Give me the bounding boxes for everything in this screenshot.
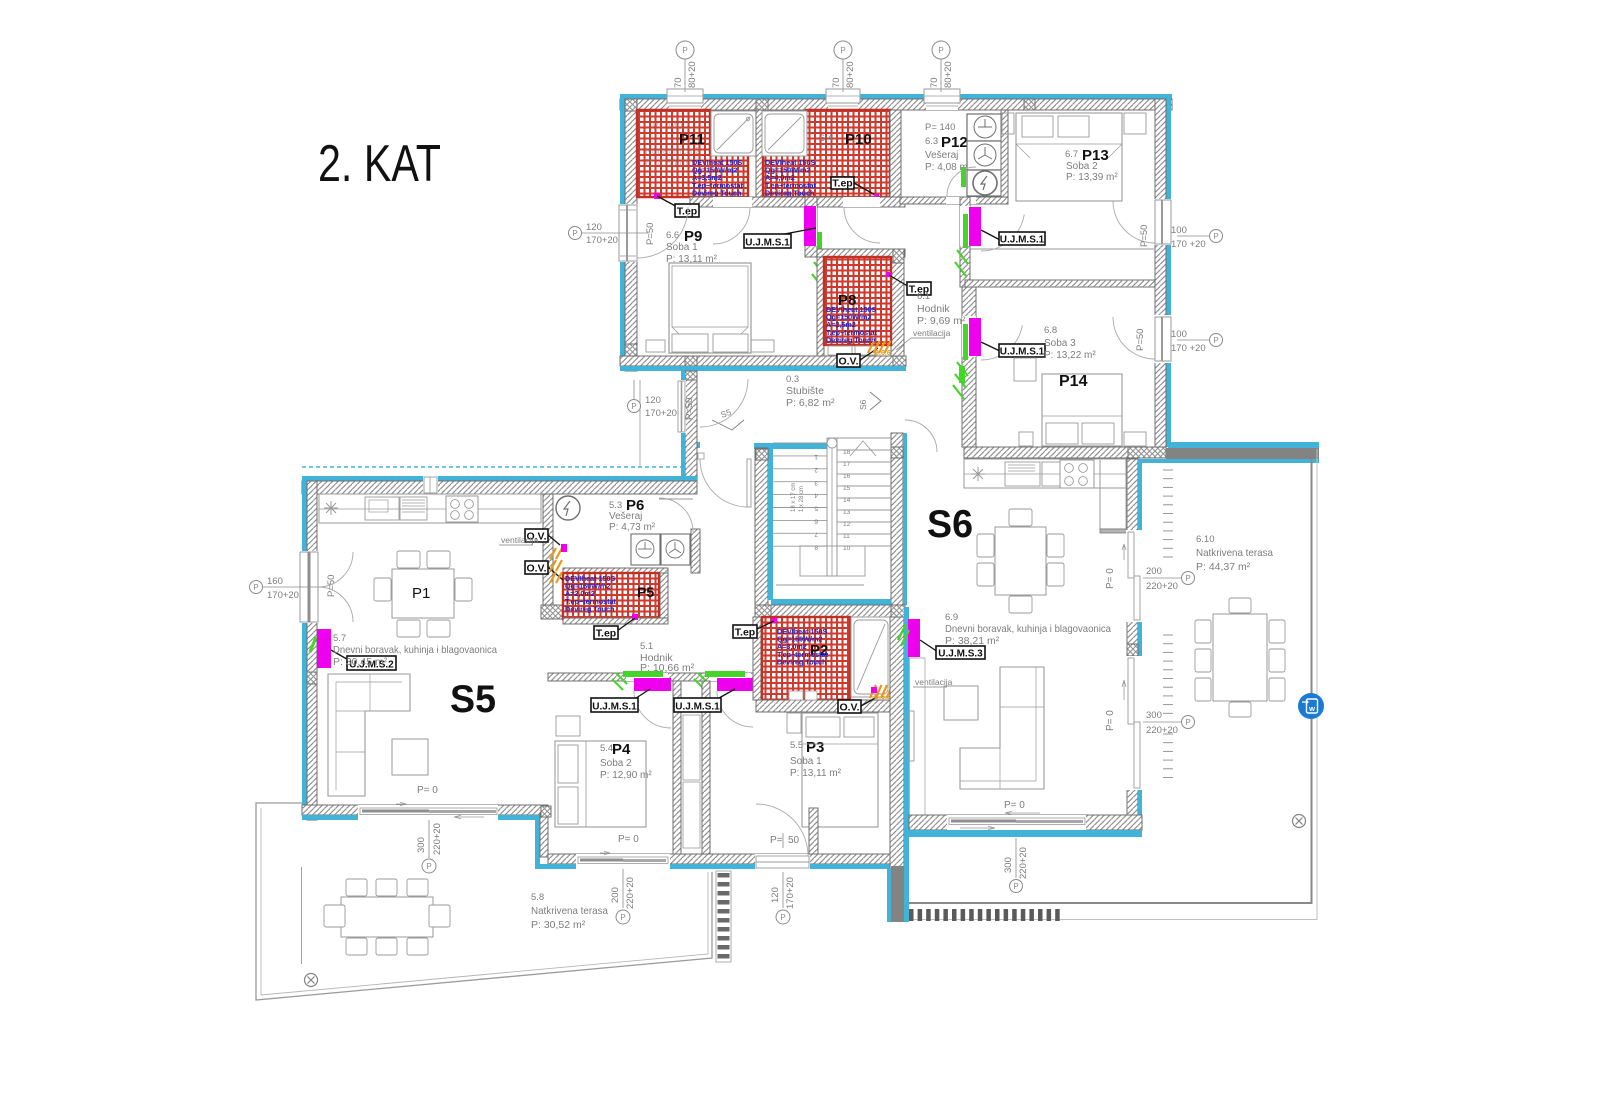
svg-text:P: P — [426, 862, 431, 871]
svg-text:220+20: 220+20 — [432, 823, 443, 855]
svg-text:U.J.M.S.1: U.J.M.S.1 — [1000, 347, 1045, 358]
svg-text:Stubište: Stubište — [786, 385, 824, 397]
svg-text:Natkrivena terasa: Natkrivena terasa — [1196, 547, 1273, 559]
svg-text:6: 6 — [814, 518, 818, 525]
svg-text:P: 30,52 m²: P: 30,52 m² — [531, 919, 586, 931]
svg-text:P: 38,21 m²: P: 38,21 m² — [945, 635, 1000, 647]
svg-text:2. KAT: 2. KAT — [318, 135, 441, 193]
svg-text:2: 2 — [814, 466, 818, 473]
svg-text:P= 0: P= 0 — [1004, 800, 1025, 811]
svg-text:O.V.: O.V. — [839, 702, 859, 714]
svg-text:Devireg Touch: Devireg Touch — [777, 657, 826, 666]
svg-text:P5: P5 — [637, 584, 654, 600]
svg-text:P: 12,90 m²: P: 12,90 m² — [600, 770, 652, 781]
svg-text:5.1: 5.1 — [640, 641, 653, 652]
svg-text:50: 50 — [788, 835, 800, 846]
svg-text:10: 10 — [843, 545, 851, 552]
svg-text:P1: P1 — [412, 585, 430, 602]
svg-text:170+20: 170+20 — [586, 235, 618, 246]
svg-text:5.8: 5.8 — [531, 892, 544, 903]
svg-text:P= 0: P= 0 — [1105, 710, 1116, 731]
svg-text:5.5: 5.5 — [790, 740, 803, 751]
svg-text:P=: P= — [770, 835, 783, 846]
svg-text:Devireg Touch: Devireg Touch — [565, 604, 614, 613]
svg-text:Devireg Touch: Devireg Touch — [765, 188, 814, 197]
svg-text:Vešeraj: Vešeraj — [925, 150, 958, 161]
svg-text:P: 6,82 m²: P: 6,82 m² — [786, 397, 835, 409]
svg-text:170+20: 170+20 — [785, 877, 796, 909]
svg-text:200: 200 — [1146, 566, 1162, 577]
svg-text:6.1: 6.1 — [917, 291, 930, 302]
svg-text:Soba 2: Soba 2 — [600, 758, 632, 769]
svg-text:Natkrivena terasa: Natkrivena terasa — [531, 905, 608, 917]
svg-text:P: P — [938, 46, 943, 55]
svg-text:B.6.6: B.6.6 — [874, 694, 891, 701]
svg-text:P=50: P=50 — [1135, 329, 1146, 351]
svg-text:7: 7 — [814, 530, 818, 537]
svg-text:P=50: P=50 — [645, 223, 656, 245]
svg-text:P= 0: P= 0 — [417, 785, 438, 796]
svg-text:80+20: 80+20 — [687, 61, 698, 88]
svg-text:P: P — [780, 913, 785, 922]
svg-text:Soba 3: Soba 3 — [1044, 338, 1076, 349]
svg-text:P: P — [1013, 882, 1018, 891]
svg-text:120: 120 — [645, 395, 661, 406]
svg-text:P: 44,37 m²: P: 44,37 m² — [1196, 561, 1251, 573]
svg-text:P10: P10 — [845, 131, 872, 148]
svg-text:Devireg Touch: Devireg Touch — [826, 335, 875, 344]
svg-text:15: 15 — [843, 485, 851, 492]
svg-text:5: 5 — [814, 505, 818, 512]
svg-text:13: 13 — [843, 509, 851, 516]
svg-text:120: 120 — [586, 222, 602, 233]
svg-text:P=50: P=50 — [684, 398, 695, 420]
svg-text:S5: S5 — [450, 678, 496, 721]
svg-text:Dnevni boravak, kuhinja i blag: Dnevni boravak, kuhinja i blagovaonica — [945, 623, 1111, 635]
svg-text:6.9: 6.9 — [945, 612, 958, 623]
svg-text:Soba 1: Soba 1 — [790, 756, 822, 767]
svg-text:S6: S6 — [858, 399, 868, 410]
svg-text:6.6: 6.6 — [666, 230, 679, 241]
svg-text:w: w — [1308, 704, 1315, 713]
svg-text:300: 300 — [416, 837, 427, 853]
svg-text:P: P — [840, 46, 845, 55]
svg-text:P: P — [1185, 718, 1190, 727]
svg-text:Soba 1: Soba 1 — [666, 242, 698, 253]
svg-text:P= 0: P= 0 — [618, 834, 639, 845]
svg-text:160: 160 — [267, 576, 283, 587]
svg-text:P12: P12 — [941, 134, 968, 151]
svg-text:4: 4 — [814, 492, 818, 499]
svg-text:P4: P4 — [612, 741, 631, 758]
svg-text:Hodnik: Hodnik — [917, 303, 950, 315]
svg-text:P: 13,22 m²: P: 13,22 m² — [1044, 350, 1096, 361]
svg-text:U.J.M.S.1: U.J.M.S.1 — [592, 702, 637, 713]
svg-text:18 x 17 cm: 18 x 17 cm — [791, 483, 797, 512]
svg-text:P= 140: P= 140 — [652, 121, 682, 132]
svg-text:U.J.M.S.1: U.J.M.S.1 — [675, 702, 720, 713]
svg-text:Devireg Touch: Devireg Touch — [692, 188, 741, 197]
svg-text:T.ep: T.ep — [735, 627, 755, 639]
svg-text:70: 70 — [929, 77, 940, 88]
svg-text:O.V.: O.V. — [526, 563, 546, 575]
svg-text:P: 4,73 m²: P: 4,73 m² — [609, 522, 656, 533]
svg-text:ventilacija: ventilacija — [913, 328, 951, 338]
svg-text:6.10: 6.10 — [1196, 534, 1215, 545]
svg-text:170+20: 170+20 — [645, 408, 677, 419]
svg-text:120: 120 — [770, 887, 781, 903]
svg-text:17: 17 — [843, 461, 851, 468]
svg-text:6.7: 6.7 — [1065, 149, 1078, 160]
svg-text:Soba 2: Soba 2 — [1066, 161, 1098, 172]
svg-text:16: 16 — [843, 473, 851, 480]
svg-text:220+20: 220+20 — [625, 877, 636, 909]
svg-text:11: 11 — [843, 533, 850, 540]
svg-text:P: P — [1185, 574, 1190, 583]
svg-text:Dnevni boravak, kuhinja i blag: Dnevni boravak, kuhinja i blagovaonica — [333, 644, 497, 656]
svg-text:5.3: 5.3 — [609, 500, 622, 511]
svg-text:P: P — [1213, 336, 1218, 345]
svg-text:220+20: 220+20 — [1018, 847, 1029, 879]
svg-text:1 x 28 cm: 1 x 28 cm — [799, 486, 805, 512]
svg-text:170+20: 170+20 — [267, 590, 299, 601]
svg-text:S6: S6 — [927, 503, 973, 546]
svg-text:P: 13,11 m²: P: 13,11 m² — [666, 254, 718, 265]
svg-text:P14: P14 — [1059, 373, 1088, 390]
svg-text:6.3: 6.3 — [925, 136, 938, 147]
svg-text:O.V.: O.V. — [838, 356, 858, 368]
svg-text:220+20: 220+20 — [1146, 725, 1178, 736]
svg-text:P: P — [631, 402, 636, 411]
svg-text:P=50: P=50 — [1139, 225, 1150, 247]
svg-text:3: 3 — [814, 479, 818, 486]
svg-text:170 +20: 170 +20 — [1171, 343, 1206, 354]
svg-text:T.ep: T.ep — [832, 178, 852, 190]
svg-text:70: 70 — [673, 77, 684, 88]
svg-text:70: 70 — [831, 77, 842, 88]
svg-text:6.8: 6.8 — [1044, 325, 1057, 336]
svg-text:5.7: 5.7 — [333, 633, 346, 644]
svg-text:8: 8 — [814, 543, 818, 550]
svg-text:P3: P3 — [806, 739, 824, 756]
svg-text:P: P — [682, 46, 687, 55]
svg-text:18: 18 — [843, 449, 851, 456]
svg-text:P: 9,69 m²: P: 9,69 m² — [917, 315, 966, 327]
svg-text:80+20: 80+20 — [845, 61, 856, 88]
svg-text:1: 1 — [814, 453, 818, 460]
svg-text:200: 200 — [610, 887, 621, 903]
svg-text:P11: P11 — [679, 131, 705, 148]
svg-text:P= 140: P= 140 — [925, 122, 955, 133]
svg-text:0.3: 0.3 — [786, 374, 799, 385]
svg-text:80+20: 80+20 — [943, 61, 954, 88]
svg-text:P: 13,11 m²: P: 13,11 m² — [790, 768, 842, 779]
svg-text:ventilacija: ventilacija — [501, 535, 539, 545]
svg-text:300: 300 — [1146, 710, 1162, 721]
svg-text:P= 0: P= 0 — [1105, 568, 1116, 589]
svg-text:14: 14 — [843, 497, 851, 504]
svg-text:170 +20: 170 +20 — [1171, 239, 1206, 250]
svg-text:P: P — [620, 913, 625, 922]
svg-text:Vešeraj: Vešeraj — [609, 511, 642, 522]
svg-text:U.J.M.S.1: U.J.M.S.1 — [1000, 235, 1045, 246]
svg-text:220+20: 220+20 — [1146, 581, 1178, 592]
svg-text:U.J.M.S.3: U.J.M.S.3 — [938, 649, 983, 660]
svg-text:P: P — [1213, 232, 1218, 241]
svg-text:T.ep: T.ep — [596, 628, 616, 640]
svg-text:300: 300 — [1003, 857, 1014, 873]
svg-text:100: 100 — [1171, 225, 1187, 236]
svg-text:P: P — [253, 583, 258, 592]
svg-text:P: P — [572, 229, 577, 238]
svg-text:100: 100 — [1171, 329, 1187, 340]
svg-text:P: 13,39 m²: P: 13,39 m² — [1066, 172, 1118, 183]
svg-text:U.J.M.S.1: U.J.M.S.1 — [745, 238, 790, 249]
svg-text:12: 12 — [843, 521, 851, 528]
svg-text:6.4: 6.4 — [820, 133, 833, 143]
svg-text:P: 4,50 m²: P: 4,50 m² — [645, 158, 692, 169]
svg-text:B.6.6: B.6.6 — [874, 350, 891, 357]
svg-text:P: 30,45 m²: P: 30,45 m² — [333, 656, 388, 668]
